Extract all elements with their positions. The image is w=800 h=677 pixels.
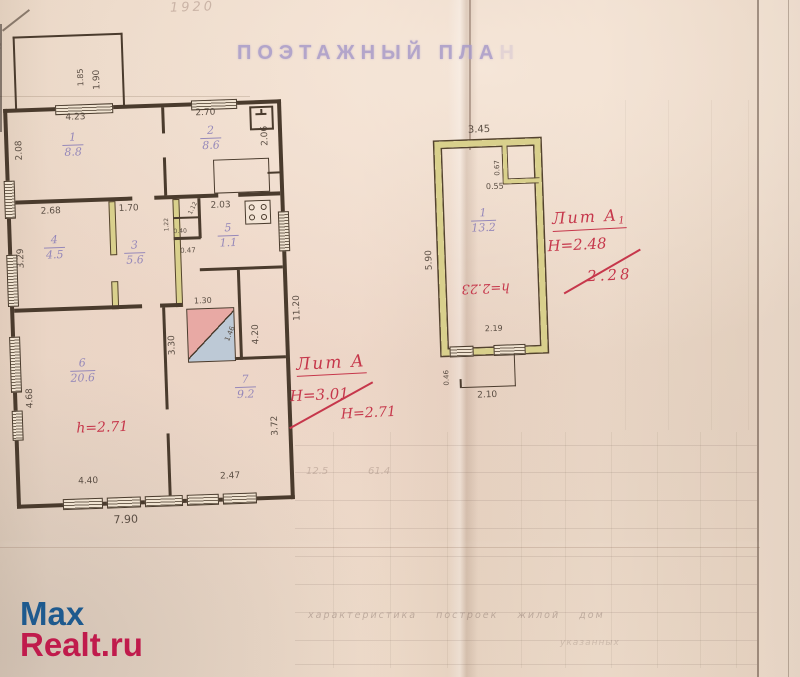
room-area: 20.6: [70, 371, 95, 385]
wall: [161, 107, 164, 133]
bleed-line: [748, 100, 749, 430]
dimension-label: 1.85: [76, 68, 86, 86]
height-value: Н=3.01: [289, 384, 349, 405]
dimension-label: 1.22: [163, 218, 170, 232]
corner-mark: 40: [0, 42, 3, 51]
dimension-label: 4.23: [65, 112, 85, 123]
faint-year-note: 1920: [170, 0, 216, 16]
room-area: 13.2: [471, 221, 496, 235]
label-text: Лит А: [552, 206, 619, 228]
dimension-label: 2.19: [485, 324, 503, 334]
wall: [163, 157, 167, 195]
bleed-line: [295, 528, 757, 529]
window-hatch: [9, 337, 22, 393]
bleed-line: [657, 432, 658, 668]
bleed-line: [700, 432, 701, 668]
room-number: 7: [234, 372, 256, 387]
room-number: 4: [43, 233, 65, 248]
lit-a1-annotation: Лит А1 Н=2.48 2.28: [544, 203, 679, 305]
dimension-label: 1.70: [118, 203, 138, 214]
bleedthrough-number: 61.4: [368, 466, 390, 477]
closet-divider: [174, 236, 201, 239]
building-letter-label: Лит А: [296, 351, 367, 377]
bleedthrough-number: 12.5: [306, 466, 328, 477]
dimension-label: 2.06: [260, 126, 271, 146]
window-hatch: [145, 495, 183, 507]
dimension-label: 2.08: [14, 140, 25, 160]
page-title-stamp: ПОЭТАЖНЫЙ ПЛАН: [237, 42, 520, 65]
bleed-line: [565, 432, 566, 668]
dimension-label: 1.30: [194, 296, 212, 306]
bleed-line: [295, 640, 757, 641]
dimension-label: 2.70: [195, 108, 215, 119]
tick: [267, 171, 279, 173]
lit-a-annotation: Лит А Н=3.01 Н=2.71: [286, 349, 421, 446]
wall: [14, 304, 142, 312]
porch-outline: [13, 33, 126, 111]
room-label: 620.6: [70, 356, 95, 385]
window-hatch: [4, 181, 16, 219]
closet-outline: [502, 144, 539, 183]
room-number: 1: [471, 206, 496, 222]
bleed-line: [521, 432, 522, 668]
window-hatch: [187, 494, 219, 506]
wall: [234, 355, 286, 360]
room-area: 1.1: [219, 236, 237, 250]
room-number: 1: [62, 130, 84, 145]
dimension-label: 5.90: [424, 250, 435, 270]
bleed-line: [333, 432, 334, 668]
wall: [237, 270, 243, 360]
gas-stove-icon: [244, 200, 271, 225]
room-number: 6: [70, 356, 95, 372]
dimension-label: 3.30: [167, 335, 178, 355]
highlighted-partition: [108, 201, 117, 255]
bleed-line: [711, 100, 712, 430]
bleed-line: [295, 556, 757, 557]
window-hatch: [12, 411, 24, 441]
right-edge-strip: [759, 0, 800, 677]
porch-step-line: [460, 379, 462, 387]
right-fold-line: [757, 0, 759, 677]
label-subscript: 1: [618, 215, 627, 226]
chimney-mark: [260, 109, 262, 115]
dimension-label: 4.40: [78, 476, 98, 487]
wall: [167, 433, 172, 499]
room-label: 35.6: [124, 238, 146, 267]
window-hatch: [63, 498, 103, 510]
dimension-label: 4.68: [25, 388, 36, 408]
watermark: Max Realt.ru: [20, 598, 143, 661]
watermark-line1: Max: [20, 598, 143, 629]
dimension-label: 0.46: [442, 370, 451, 386]
dimension-label: 3.45: [468, 124, 491, 136]
wall: [162, 307, 169, 409]
bleed-line: [295, 584, 757, 585]
dimension-label: 0.55: [486, 182, 504, 192]
height-value: Н=2.71: [340, 404, 396, 423]
bleed-line: [736, 432, 737, 668]
room-area: 8.8: [64, 145, 82, 159]
dimension-label: 3.29: [16, 248, 27, 268]
scanned-floor-plan-document: { "page": { "title_stamp": "ПОЭТАЖНЫЙ ПЛ…: [0, 0, 800, 677]
dimension-label: 0.67: [493, 160, 502, 176]
height-value: Н=2.48: [547, 234, 607, 255]
dimension-label: 2.47: [220, 471, 240, 482]
room-label: 79.2: [234, 372, 256, 401]
dimension-label: 4.20: [251, 324, 262, 344]
bleed-line: [611, 432, 612, 668]
height-value: 2.28: [587, 265, 633, 285]
bleed-line: [295, 664, 757, 665]
closet-divider: [173, 216, 200, 219]
room-area: 8.6: [202, 138, 220, 152]
bleedthrough-caption: характеристика построек жилой дом: [308, 610, 605, 621]
dimension-label: 2.10: [477, 390, 497, 401]
room-area: 9.2: [237, 387, 255, 401]
corner-diagonal-line: [2, 9, 30, 31]
bleedthrough-caption2: указанных: [560, 638, 620, 648]
watermark-line2: Realt.ru: [20, 629, 143, 660]
main-house-plan: h=2.71 40 1.851.904.232.702.062.082.681.…: [3, 99, 295, 508]
bleed-line: [295, 472, 757, 473]
window-hatch: [223, 492, 257, 504]
wall: [200, 265, 283, 271]
annex-plan: h=2.23 3.450.670.555.902.190.462.10113.2: [434, 138, 547, 356]
dimension-label: 3.72: [270, 415, 281, 435]
building-letter-label: Лит А1: [552, 205, 628, 232]
room-label: 28.6: [200, 123, 222, 152]
bleed-line: [447, 432, 448, 668]
room-number: 3: [124, 238, 146, 253]
dimension-label: 2.03: [210, 200, 230, 211]
title-text: ПОЭТАЖНЫЙ ПЛА: [237, 42, 499, 64]
dimension-label: 0.40: [173, 228, 187, 235]
dimension-label: 1.90: [92, 69, 103, 89]
right-edge-line: [788, 0, 789, 677]
room-label: 44.5: [43, 233, 65, 262]
room-number: 5: [217, 221, 239, 236]
window-hatch: [278, 211, 290, 251]
dimension-label: 2.68: [41, 206, 61, 217]
furniture-outline: [213, 158, 270, 194]
left-edge-mark: [0, 24, 2, 132]
dimension-label: 0.47: [180, 246, 196, 255]
wall: [154, 194, 218, 200]
room-number: 2: [200, 123, 222, 138]
title-text-faded: Н: [499, 42, 519, 64]
room-area: 4.5: [46, 248, 64, 262]
room-area: 5.6: [126, 253, 144, 267]
bleed-line: [295, 500, 757, 501]
room-label: 113.2: [471, 206, 496, 235]
height-annotation: h=2.23: [461, 279, 510, 296]
height-annotation: h=2.71: [76, 419, 128, 437]
room-label: 18.8: [62, 130, 84, 159]
horizontal-crease: [0, 547, 760, 548]
room-label: 51.1: [217, 221, 239, 250]
dimension-label: 7.90: [113, 513, 138, 527]
window-hatch: [107, 496, 141, 508]
bleed-line: [295, 445, 757, 446]
porch-steps-outline: [459, 353, 516, 388]
dimension-label: 11.20: [292, 295, 303, 321]
